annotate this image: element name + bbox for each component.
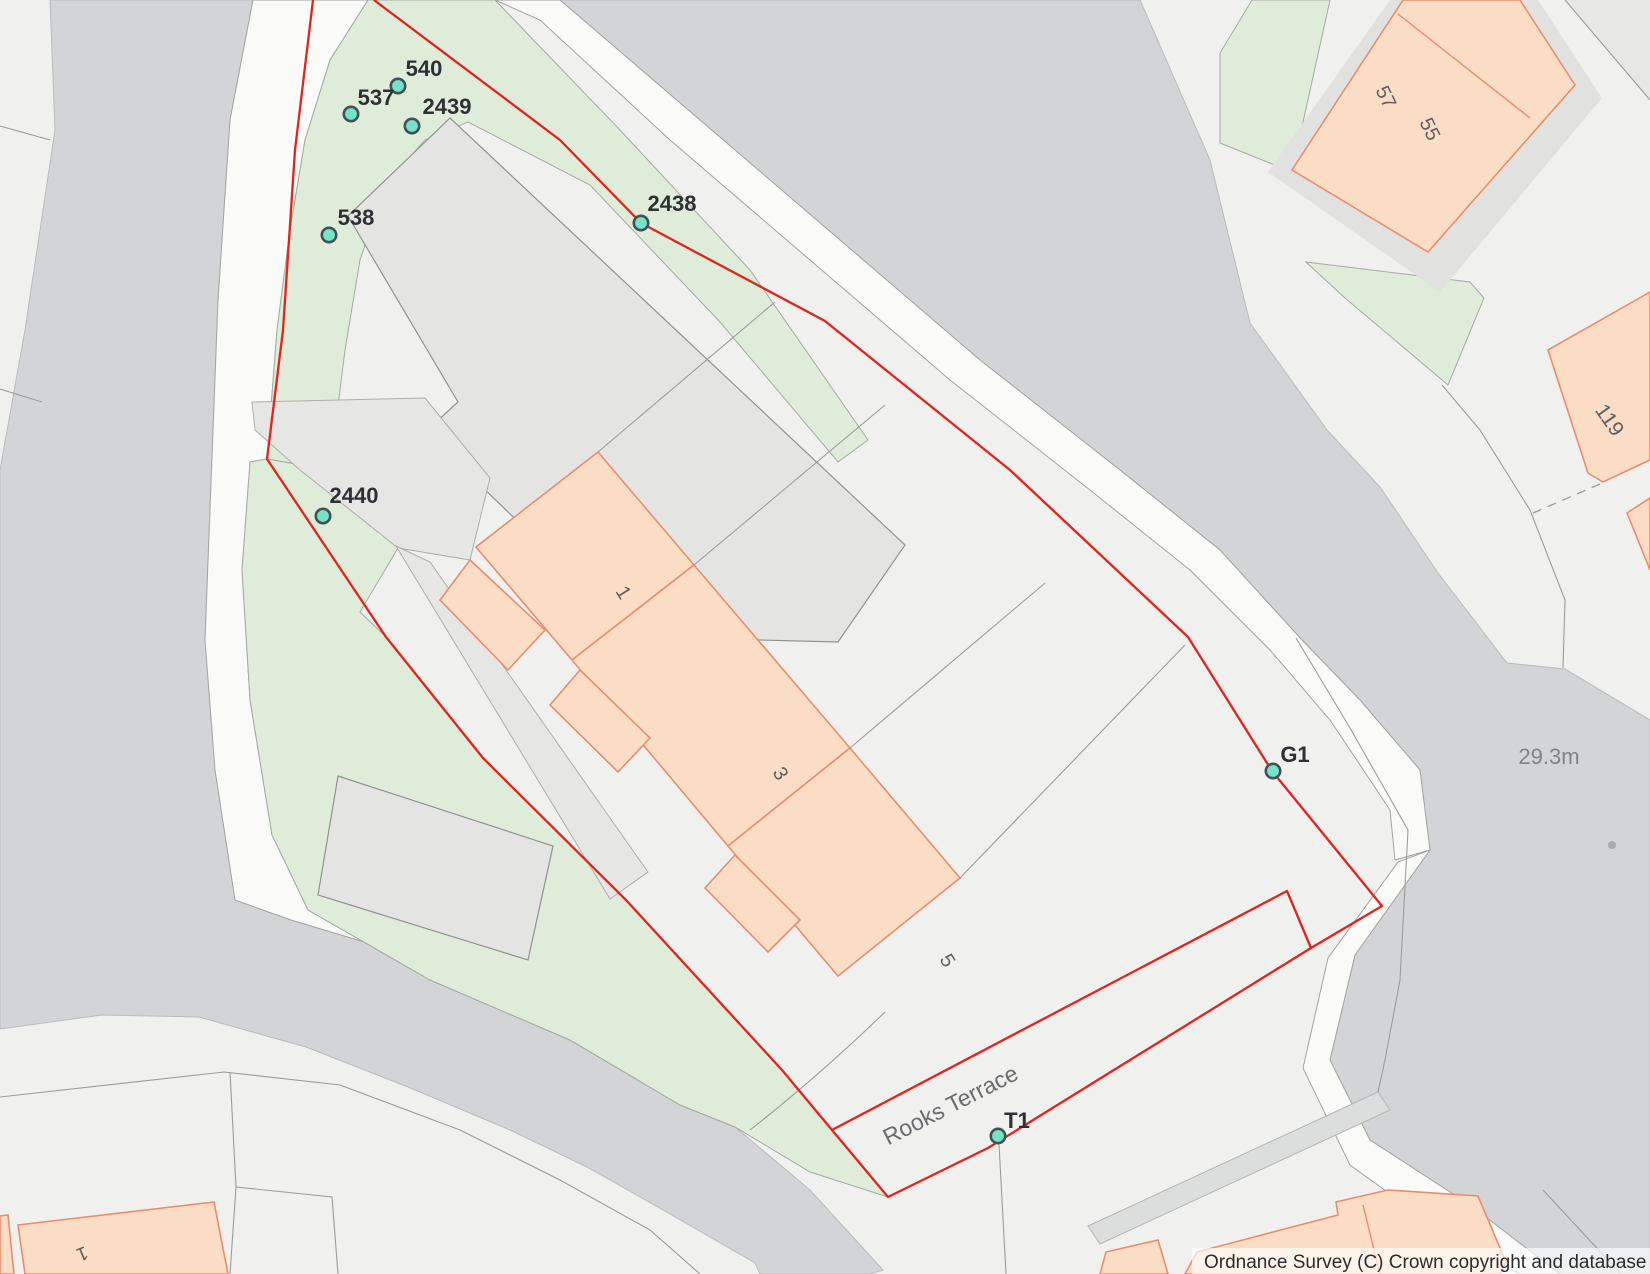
marker-label-G1: G1 — [1280, 742, 1309, 767]
marker-dot-G1[interactable] — [1266, 764, 1280, 778]
elevation-label: 29.3m — [1518, 744, 1579, 769]
marker-label-2439: 2439 — [423, 94, 472, 119]
marker-label-T1: T1 — [1004, 1108, 1030, 1133]
marker-dot-2438[interactable] — [634, 216, 648, 230]
marker-label-537: 537 — [358, 85, 395, 110]
marker-label-540: 540 — [406, 56, 443, 81]
marker-dot-T1[interactable] — [991, 1129, 1005, 1143]
attribution-bar: Ordnance Survey (C) Crown copyright and … — [1192, 1248, 1650, 1274]
marker-label-2440: 2440 — [330, 483, 379, 508]
marker-label-2438: 2438 — [648, 191, 697, 216]
attribution-text: Ordnance Survey (C) Crown copyright and … — [1192, 1248, 1650, 1274]
map-viewport[interactable]: Rooks Terrace 29.3m 13557551191 54053724… — [0, 0, 1650, 1274]
marker-dot-2440[interactable] — [316, 509, 330, 523]
road-dot — [1608, 841, 1616, 849]
marker-dot-2439[interactable] — [405, 119, 419, 133]
map-canvas[interactable]: Rooks Terrace 29.3m 13557551191 54053724… — [0, 0, 1650, 1274]
marker-dot-537[interactable] — [344, 107, 358, 121]
marker-label-538: 538 — [338, 205, 375, 230]
marker-dot-538[interactable] — [322, 228, 336, 242]
